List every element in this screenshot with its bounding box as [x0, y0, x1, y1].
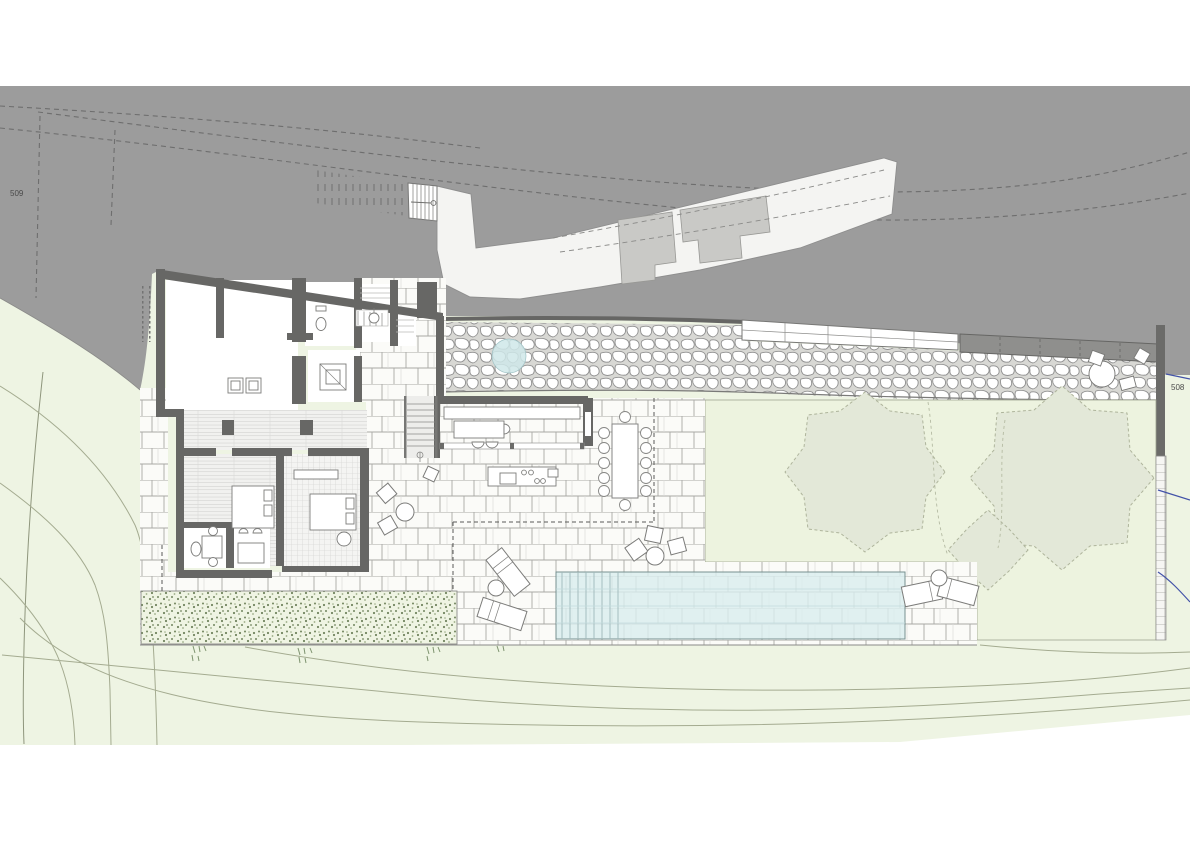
site-plan-page: 509 508 [0, 0, 1190, 841]
tree-canopy-left [785, 392, 945, 552]
chair-1 [645, 525, 664, 543]
planting-bed [141, 591, 457, 644]
glazing-slit [585, 412, 591, 436]
side-table-3 [396, 503, 414, 521]
hall-floor [305, 282, 360, 346]
contour-label-509: 509 [10, 189, 24, 198]
boundary-wall-dark [1156, 325, 1165, 456]
side-table-4 [931, 570, 947, 586]
living-glazing [440, 443, 584, 449]
contour-label-508: 508 [1171, 383, 1185, 392]
driveway-entry-stairs [408, 183, 437, 221]
louvre-canopy-band [179, 410, 367, 450]
swimming-pool [556, 572, 905, 639]
garden-wall-strip [1156, 456, 1166, 640]
side-table-2 [646, 547, 664, 565]
side-table-1 [488, 580, 504, 596]
site-plan-drawing: 509 508 [0, 0, 1190, 841]
courtyard-pond [492, 339, 526, 373]
